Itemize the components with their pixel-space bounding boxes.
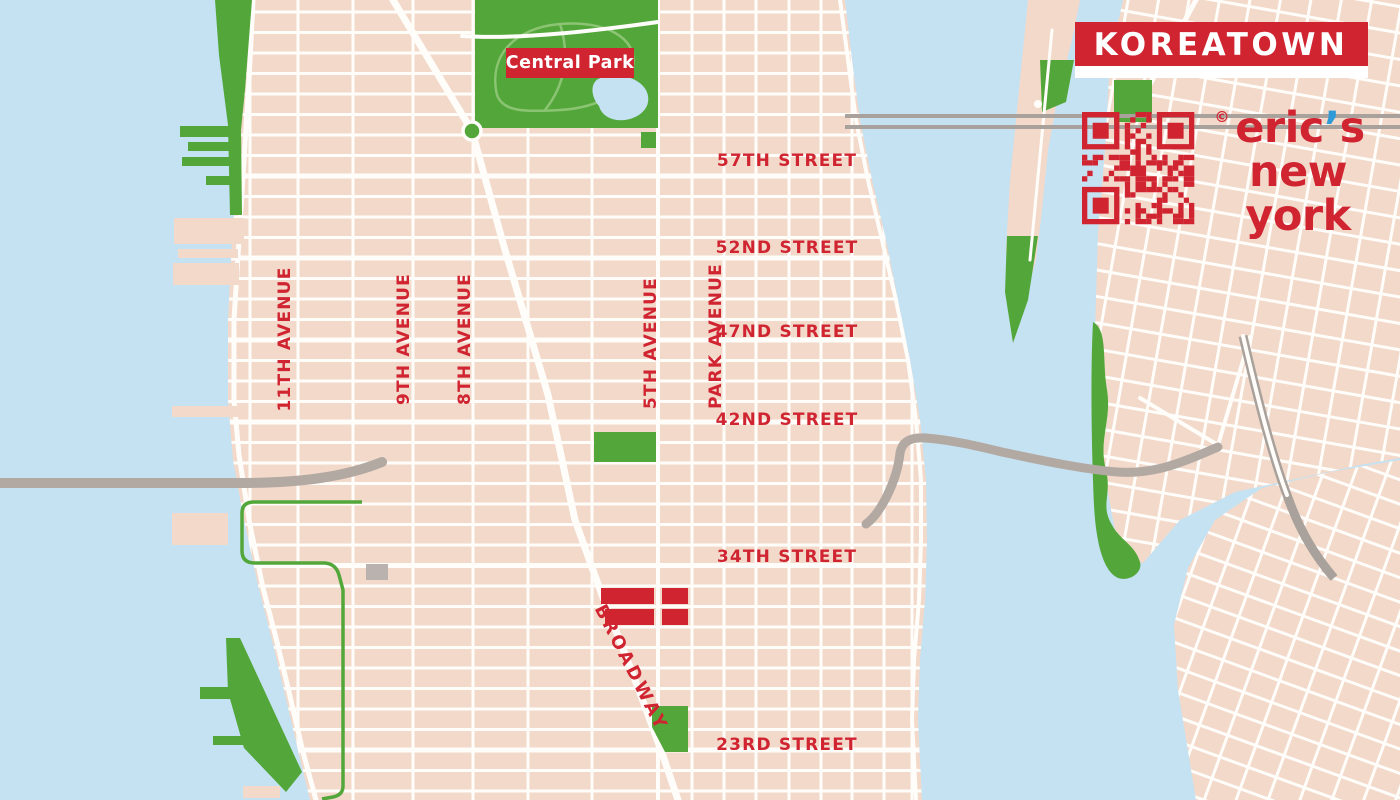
street-label-47nd: 47ND STREET (716, 322, 859, 342)
koreatown-banner: KOREATOWN (1075, 22, 1368, 78)
pier (172, 406, 246, 417)
street-label-34th: 34TH STREET (717, 547, 857, 567)
pier (173, 263, 239, 285)
logo-line-1: eric’s (1235, 103, 1365, 153)
banner-underline (1075, 66, 1368, 78)
penn-station-block (366, 564, 388, 580)
central-park-label: Central Park (506, 53, 635, 73)
avenue-label-8th: 8TH AVENUE (455, 273, 475, 405)
green-pier (213, 736, 260, 745)
green-pier (180, 126, 229, 137)
pier (178, 249, 238, 258)
street-label-42nd: 42ND STREET (716, 410, 859, 430)
street-label-52nd: 52ND STREET (716, 238, 859, 258)
central-park-banner: Central Park (506, 48, 635, 78)
logo-line-2: new (1249, 147, 1347, 197)
street-label-23rd: 23RD STREET (716, 735, 858, 755)
grand-army-plaza-green (641, 132, 656, 148)
pier (174, 218, 244, 244)
street-label-57th: 57TH STREET (717, 151, 857, 171)
koreatown-block (662, 609, 688, 625)
logo-line-3: york (1245, 191, 1352, 241)
pier (243, 786, 280, 798)
koreatown-map-page: 57TH STREET 52ND STREET 47ND STREET 42ND… (0, 0, 1400, 800)
avenue-label-11th: 11TH AVENUE (275, 266, 295, 411)
island-circle (1034, 100, 1042, 108)
javits-pier (172, 513, 228, 545)
banner-title: KOREATOWN (1094, 27, 1349, 63)
map-canvas: 57TH STREET 52ND STREET 47ND STREET 42ND… (0, 0, 1400, 800)
avenue-label-9th: 9TH AVENUE (394, 273, 414, 405)
green-pier (200, 687, 233, 699)
bryant-park (594, 432, 656, 462)
koreatown-block (662, 588, 688, 604)
avenue-label-park: PARK AVENUE (706, 263, 726, 409)
copyright-icon: © (1215, 108, 1230, 126)
avenue-label-5th: 5TH AVENUE (641, 277, 661, 409)
green-pier (188, 142, 229, 151)
green-pier (182, 157, 229, 166)
green-pier (206, 176, 230, 185)
columbus-circle (463, 122, 481, 140)
